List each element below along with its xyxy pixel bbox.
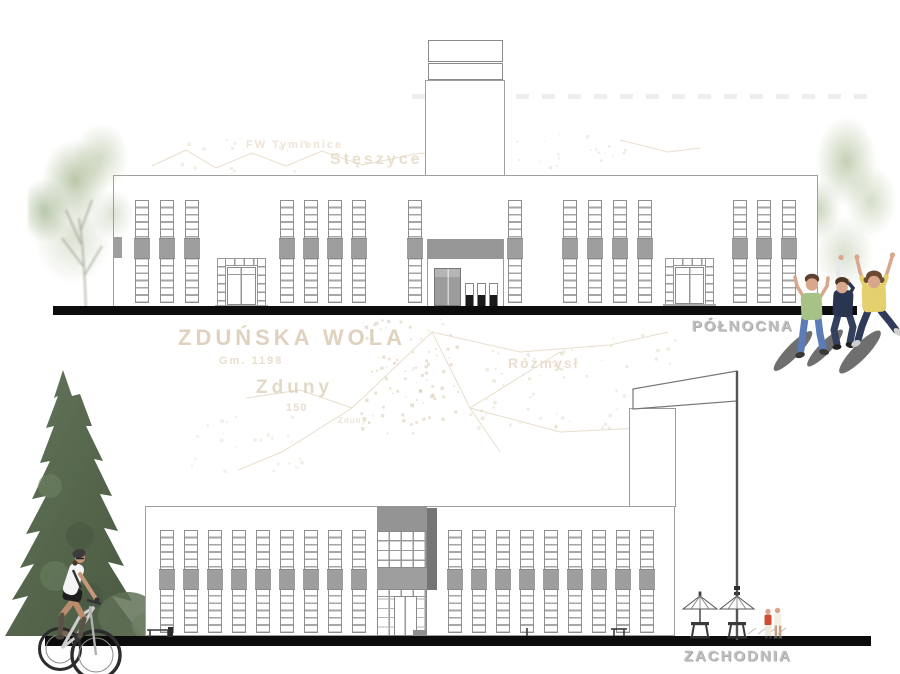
north-main-entrance [427, 239, 504, 308]
entrance-upper-glazing [377, 531, 427, 568]
entrance-slit-window [465, 283, 474, 307]
entrance-gray-door [434, 268, 461, 306]
west-elevation-label: ZACHODNIA [684, 648, 792, 665]
pine-tree [0, 366, 168, 648]
map-place-name: Zduny [338, 416, 367, 425]
door-side-panes [218, 259, 226, 305]
map-place-name: ZDUŃSKA WOLA [178, 325, 406, 351]
west-ground-line [45, 636, 871, 646]
map-place-name: Różmysł [508, 355, 580, 371]
pine-silhouette [5, 370, 168, 644]
north-tower-cap-upper [428, 40, 503, 62]
map-place-name: 150 [286, 402, 307, 414]
entrance-slit-window [489, 283, 498, 307]
map-place-name: Zduny [256, 377, 333, 399]
entrance-top-panel [377, 506, 427, 531]
presentation-board: FW TymieniceStęszyceZDUŃSKA WOLAGm. 1198… [0, 0, 900, 674]
door-transom-panes [226, 259, 257, 266]
door-transom-panes [674, 259, 705, 266]
door-side-panes [257, 259, 265, 305]
map-place-name: Stęszyce [330, 151, 423, 169]
double-door [227, 267, 256, 305]
entrance-mid-band [377, 568, 427, 589]
entrance-slit-window [477, 283, 486, 307]
entrance-side-return [427, 508, 437, 590]
west-tower [629, 408, 676, 507]
deciduous-tree-left [28, 126, 146, 318]
north-side-door-left [217, 258, 266, 306]
west-main-entrance [377, 506, 437, 636]
entrance-header-band [428, 239, 503, 259]
map-place-name: Gm. 1198 [219, 355, 283, 367]
tree-trunk [28, 126, 146, 318]
door-side-panes [705, 259, 713, 304]
north-ground-line [53, 306, 857, 315]
map-place-name: FW Tymienice [246, 139, 343, 151]
door-side-panes [666, 259, 674, 304]
north-tower [425, 80, 505, 176]
north-elevation-label: PÓŁNOCNA [692, 318, 794, 335]
double-door [675, 267, 704, 304]
north-tower-cap-lower [428, 63, 503, 80]
north-side-door-right [665, 258, 714, 305]
